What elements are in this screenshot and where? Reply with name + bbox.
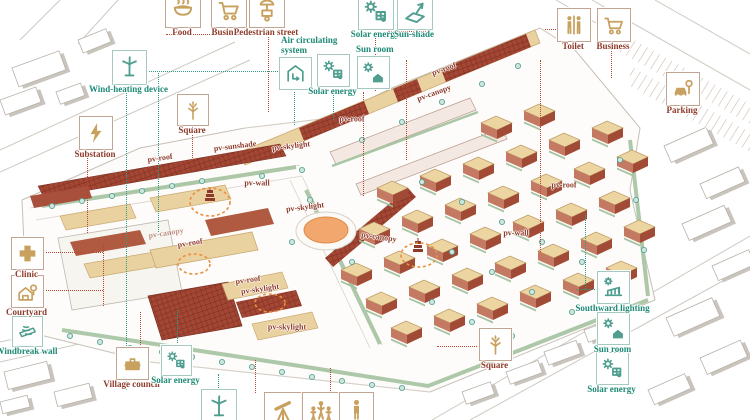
connector-line [576,289,597,290]
callout-solar-energy-mid [317,54,350,87]
solar-panel-icon [322,59,345,82]
callout-label: Sun-shade [394,29,434,39]
callout-label: Courtyard [6,307,47,317]
connector-line [363,92,364,196]
lightning-icon [84,121,108,145]
connector-line [437,346,479,347]
courtyard-house-icon [16,280,39,303]
connector-line [87,153,88,233]
connector-line [43,252,103,253]
people-icon [307,397,335,420]
callout-sun-room-mid [357,56,390,89]
callout-pedestrian-street [249,0,285,28]
connector-line [103,244,104,306]
callout-toilet [557,8,591,42]
callout-label: Square [481,360,508,370]
callout-label: Solar energy [587,384,636,394]
connector-line [44,290,103,291]
connector-line [140,312,141,347]
briefcase-icon [121,352,144,375]
connector-line [218,374,219,390]
solar-panel-icon [601,357,624,380]
callout-label: Parking [666,105,697,115]
callout-label: Food [172,27,192,37]
pv-plan-label: pv-roof [551,181,576,190]
solar-panel-icon [363,0,389,25]
tree-icon [182,99,204,121]
callout-windbreak-wall [12,316,43,347]
callout-square-left [177,94,209,126]
callout-label: Wind-heating device [89,84,168,94]
south-light-icon [602,276,625,299]
car-icon [671,77,695,101]
callout-square-bottom [479,328,512,361]
callout-food [165,0,201,28]
connector-line [406,60,407,160]
cross-icon [16,242,39,265]
callout-label: Substation [74,149,115,159]
pv-plan-label: pv-wall [503,229,528,238]
callout-label: Square [178,125,205,135]
connector-line [255,360,256,393]
solar-panel-icon [166,350,187,371]
sun-house-icon [362,61,385,84]
callout-southward-lighting [597,271,630,304]
sun-shade-icon [402,0,428,25]
callout-label: Toilet [562,41,584,51]
callout-person-bottom [339,392,374,420]
connector-line [177,310,178,345]
callout-label: Sun room [356,44,434,54]
callout-air-circulating [279,57,312,90]
pv-plan-label: pv-skylight [268,323,306,332]
callout-courtyard [11,275,44,308]
callout-clinic [11,237,44,270]
callout-label: Solar energy [151,375,200,385]
connector-line [330,368,331,393]
callout-village-council [116,347,149,380]
callout-business-right [597,8,631,42]
masterplan-diagram: FoodBusinessPedestrian streetSolar energ… [0,0,750,420]
callout-solar-energy-right [596,352,629,385]
wind-turbine-icon [117,55,142,80]
connector-line [268,34,269,112]
callout-label: Solar energy [308,86,357,96]
wind-turbine-icon [206,394,232,420]
cart-icon [602,13,626,37]
person-icon [344,397,369,420]
connector-line [585,215,586,289]
callout-parking [666,72,700,106]
callout-turbine-bottom [201,389,237,420]
callout-label: Business [596,41,629,51]
connector-line [540,60,541,252]
connector-line [611,47,612,78]
callout-substation [79,116,113,150]
telescope-icon [269,397,297,420]
connector-line [126,84,127,390]
callout-sun-room-right [597,312,630,345]
air-house-icon [284,62,307,85]
callout-solar-energy-bl [161,345,192,376]
pv-plan-label: pv-wall [244,179,269,188]
toilet-icon [562,13,586,37]
cart-icon [216,0,242,23]
sun-house-icon [602,317,625,340]
callout-label: Clinic [15,269,38,279]
pv-plan-label: pv-roof [339,115,364,124]
callout-solar-energy-top [358,0,394,30]
callout-business-top [211,0,247,28]
callout-sun-shade [397,0,433,30]
callout-wind-heating [112,50,147,85]
callout-telescope-bottom [264,392,302,420]
callout-label: Southward lighting [575,303,649,313]
connector-line [294,89,295,125]
callout-people-bottom [302,392,340,420]
connector-line [146,71,300,72]
callout-label: Sun room [594,344,632,354]
food-icon [170,0,196,23]
vendor-cart-icon [254,0,280,23]
callout-label: Air circulating system [281,35,359,55]
callout-label: Windbreak wall [0,346,57,356]
windbreak-icon [17,321,38,342]
tree-icon [484,333,507,356]
